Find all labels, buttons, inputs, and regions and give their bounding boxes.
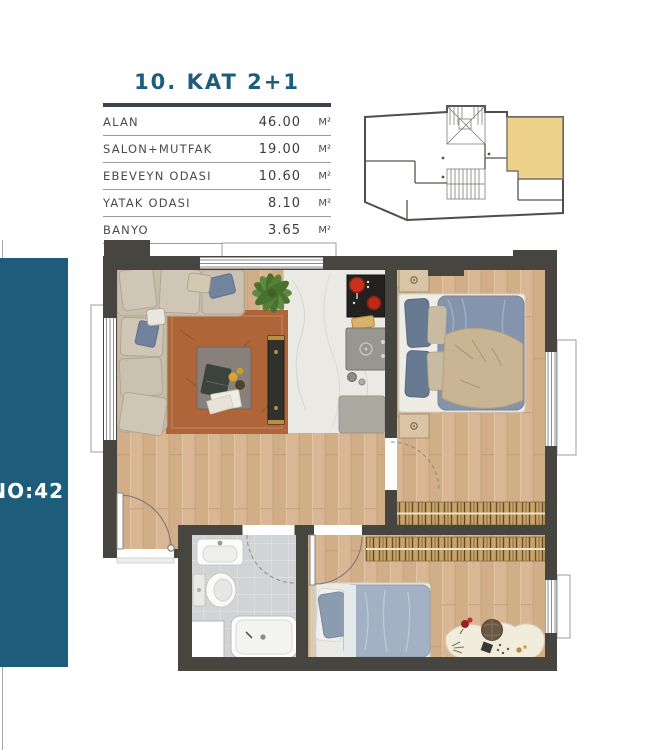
unit-number-label: NO:42 bbox=[0, 479, 64, 503]
coffee-table bbox=[197, 347, 251, 414]
unit-number-badge: NO:42 bbox=[0, 258, 68, 667]
window bbox=[104, 318, 116, 440]
floorplan-page: { "header": { "title": "10. KAT 2+1" }, … bbox=[0, 0, 660, 750]
window-sill bbox=[557, 340, 576, 455]
area-unit: M² bbox=[301, 198, 331, 209]
balcony-outline bbox=[222, 243, 336, 257]
bathroom-sink bbox=[197, 539, 243, 565]
page-title: 10. KAT 2+1 bbox=[103, 70, 331, 94]
washing-machine bbox=[188, 621, 224, 661]
master-bed bbox=[397, 288, 525, 416]
area-value: 19.00 bbox=[245, 142, 301, 157]
area-unit: M² bbox=[301, 117, 331, 128]
wardrobe bbox=[397, 502, 545, 525]
key-plan bbox=[353, 102, 583, 226]
table-row: ALAN 46.00 M² bbox=[103, 109, 331, 136]
area-value: 8.10 bbox=[245, 196, 301, 211]
floor-plan bbox=[88, 240, 582, 676]
table-row: YATAK ODASI 8.10 M² bbox=[103, 190, 331, 217]
area-unit: M² bbox=[301, 225, 331, 236]
tv-unit bbox=[268, 336, 284, 424]
room-label: BANYO bbox=[103, 223, 245, 237]
highlighted-unit bbox=[507, 117, 563, 179]
door-threshold bbox=[117, 558, 174, 563]
cutting-board bbox=[351, 316, 374, 330]
pouf bbox=[482, 620, 503, 641]
fruit bbox=[237, 368, 244, 375]
kitchen-sink bbox=[346, 328, 386, 370]
window-sill bbox=[91, 305, 104, 452]
pillow-beige bbox=[187, 273, 211, 294]
window bbox=[546, 352, 557, 446]
window-sill bbox=[557, 575, 570, 638]
room-label: EBEVEYN ODASI bbox=[103, 169, 245, 183]
fruit bbox=[229, 373, 238, 382]
room-label: ALAN bbox=[103, 115, 245, 129]
pillow bbox=[427, 306, 446, 345]
wardrobe bbox=[366, 537, 545, 561]
title-rule bbox=[103, 103, 331, 107]
single-bed bbox=[309, 583, 430, 659]
shower bbox=[231, 616, 297, 658]
area-value: 10.60 bbox=[245, 169, 301, 184]
room-label: SALON+MUTFAK bbox=[103, 142, 245, 156]
area-unit: M² bbox=[301, 144, 331, 155]
nightstand bbox=[399, 414, 429, 438]
kitchen-mat bbox=[339, 396, 385, 433]
red-pot bbox=[350, 278, 365, 293]
duvet bbox=[344, 585, 430, 657]
pillow-white bbox=[146, 308, 166, 326]
red-pot bbox=[368, 297, 381, 310]
door-handle bbox=[168, 545, 174, 551]
table-row: EBEVEYN ODASI 10.60 M² bbox=[103, 163, 331, 190]
kettle bbox=[348, 373, 357, 382]
room-label: YATAK ODASI bbox=[103, 196, 245, 210]
window bbox=[200, 258, 323, 269]
desk-item bbox=[516, 647, 521, 652]
area-unit: M² bbox=[301, 171, 331, 182]
area-value: 3.65 bbox=[245, 223, 301, 238]
area-table: ALAN 46.00 M² SALON+MUTFAK 19.00 M² EBEV… bbox=[103, 109, 331, 244]
window bbox=[546, 580, 557, 633]
bowl bbox=[235, 380, 245, 390]
nightstand bbox=[399, 268, 429, 292]
area-value: 46.00 bbox=[245, 115, 301, 130]
blanket bbox=[442, 328, 523, 408]
stove bbox=[347, 275, 385, 317]
table-row: SALON+MUTFAK 19.00 M² bbox=[103, 136, 331, 163]
toilet bbox=[193, 573, 236, 607]
